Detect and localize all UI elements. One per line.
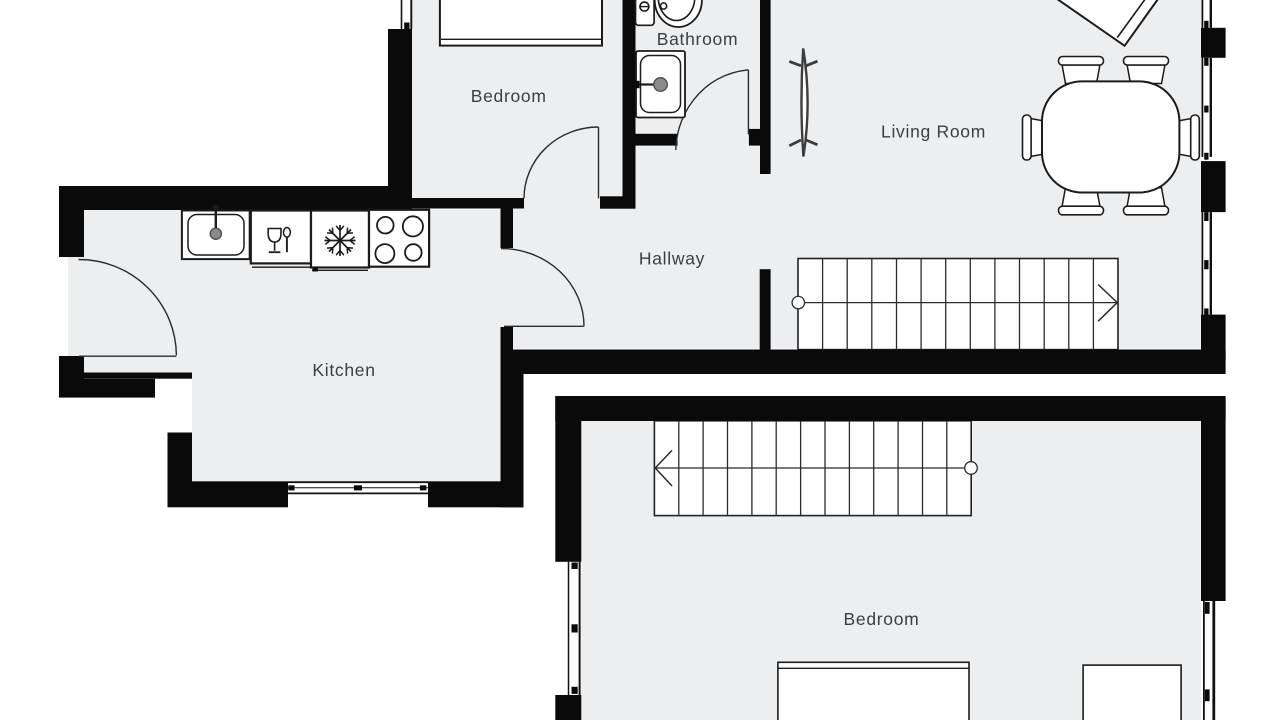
svg-text:Bedroom: Bedroom xyxy=(471,86,547,106)
svg-text:Bedroom: Bedroom xyxy=(844,609,920,629)
svg-text:Kitchen: Kitchen xyxy=(312,360,375,380)
svg-text:Living Room: Living Room xyxy=(881,121,986,141)
svg-text:Bathroom: Bathroom xyxy=(657,29,738,49)
svg-text:Hallway: Hallway xyxy=(639,248,705,268)
